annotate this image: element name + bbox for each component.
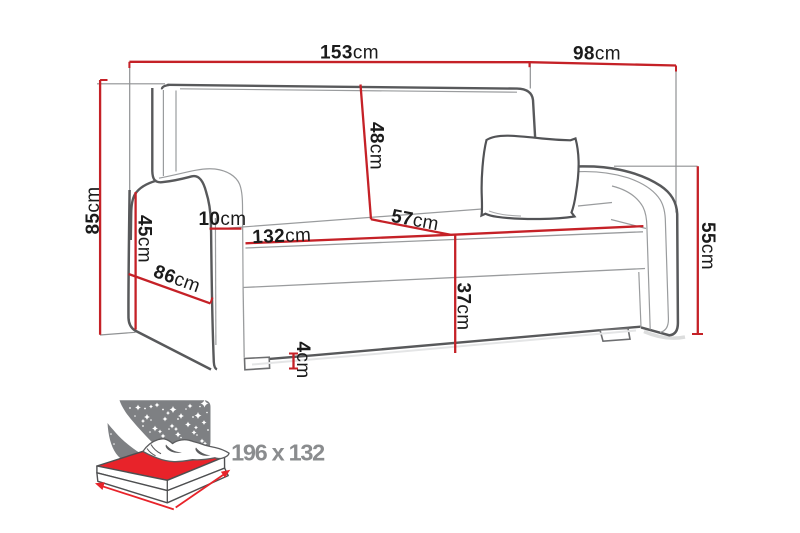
svg-text:45cm: 45cm [134, 215, 155, 263]
svg-text:85cm: 85cm [83, 186, 104, 234]
svg-text:55cm: 55cm [697, 222, 718, 270]
svg-text:153cm: 153cm [320, 42, 379, 63]
svg-text:132cm: 132cm [252, 225, 312, 248]
svg-text:10cm: 10cm [198, 209, 246, 230]
svg-text:196 x 132: 196 x 132 [231, 440, 325, 466]
svg-text:4cm: 4cm [292, 341, 313, 378]
svg-text:98cm: 98cm [573, 43, 621, 64]
svg-text:48cm: 48cm [366, 122, 387, 170]
svg-text:37cm: 37cm [453, 282, 474, 330]
